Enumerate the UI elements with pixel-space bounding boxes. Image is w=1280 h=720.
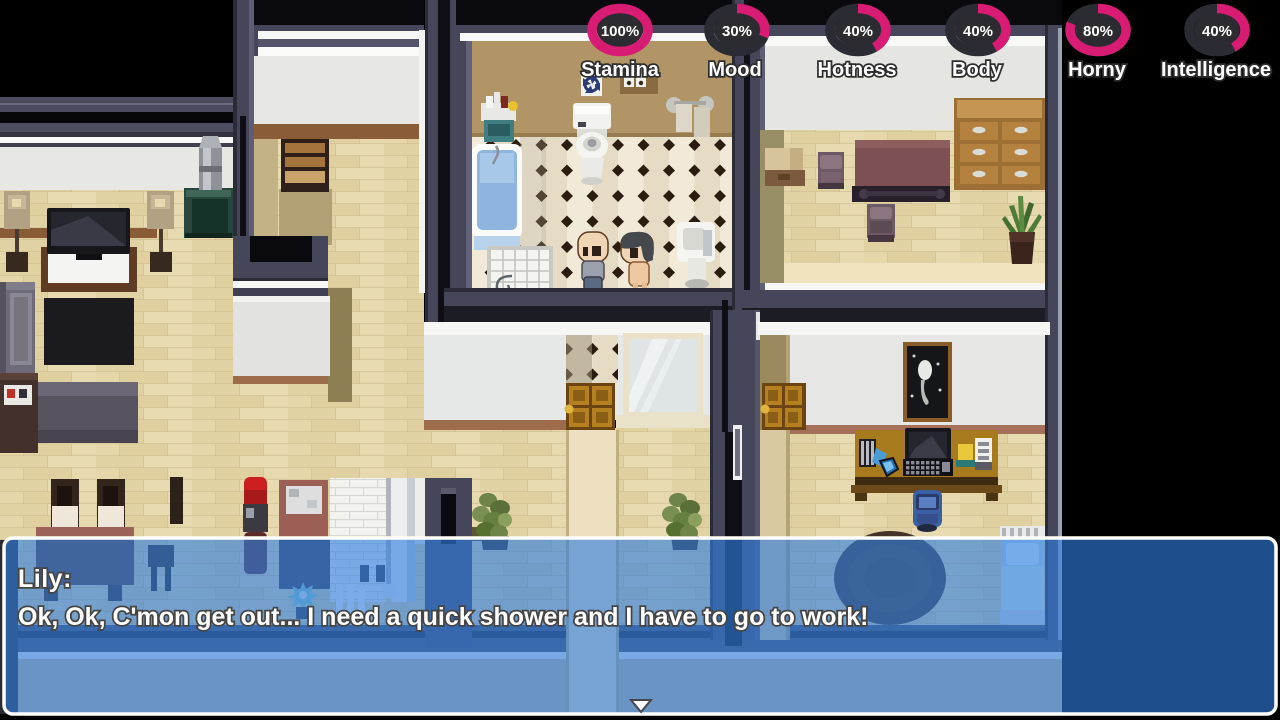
svg-text:40%: 40% <box>843 23 873 40</box>
svg-text:Ok, Ok, C'mon get out... I nee: Ok, Ok, C'mon get out... I need a quick … <box>18 603 869 631</box>
svg-text:Stamina: Stamina <box>581 59 660 81</box>
svg-text:40%: 40% <box>963 23 993 40</box>
svg-text:100%: 100% <box>601 23 639 40</box>
svg-text:Mood: Mood <box>708 59 761 81</box>
svg-text:80%: 80% <box>1083 23 1113 40</box>
svg-text:40%: 40% <box>1202 23 1232 40</box>
svg-text:Horny: Horny <box>1068 59 1127 81</box>
svg-text:Lily:: Lily: <box>18 565 72 593</box>
svg-text:30%: 30% <box>722 23 752 40</box>
svg-text:Body: Body <box>952 59 1003 81</box>
svg-text:Intelligence: Intelligence <box>1161 59 1271 81</box>
svg-text:Hotness: Hotness <box>818 59 897 81</box>
